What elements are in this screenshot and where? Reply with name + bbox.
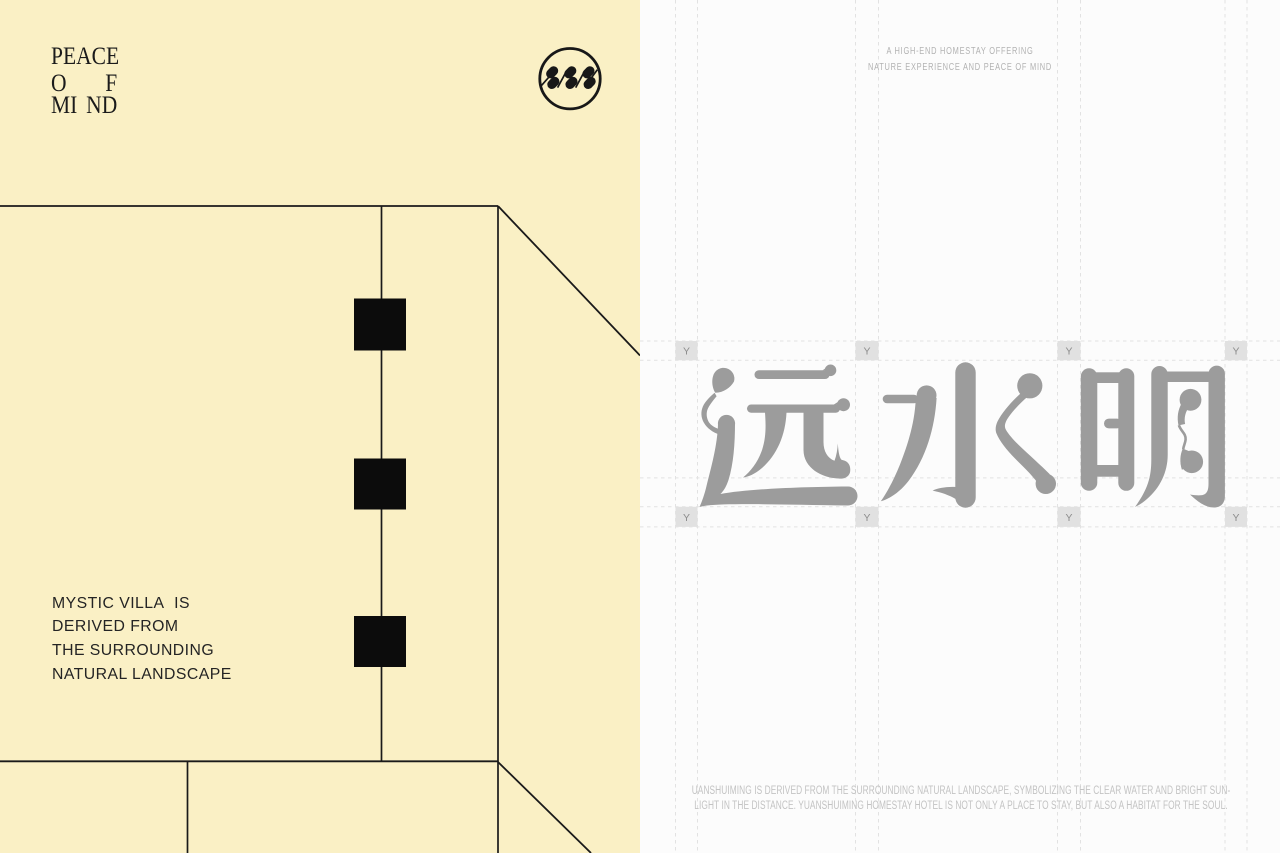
svg-text:Y: Y [1232,346,1239,358]
svg-text:Y: Y [683,346,690,358]
svg-text:Y: Y [863,346,870,358]
svg-text:Y: Y [1065,512,1072,524]
svg-text:Y: Y [863,512,870,524]
svg-text:Y: Y [1232,512,1239,524]
svg-text:Y: Y [1065,346,1072,358]
svg-text:Y: Y [683,512,690,524]
